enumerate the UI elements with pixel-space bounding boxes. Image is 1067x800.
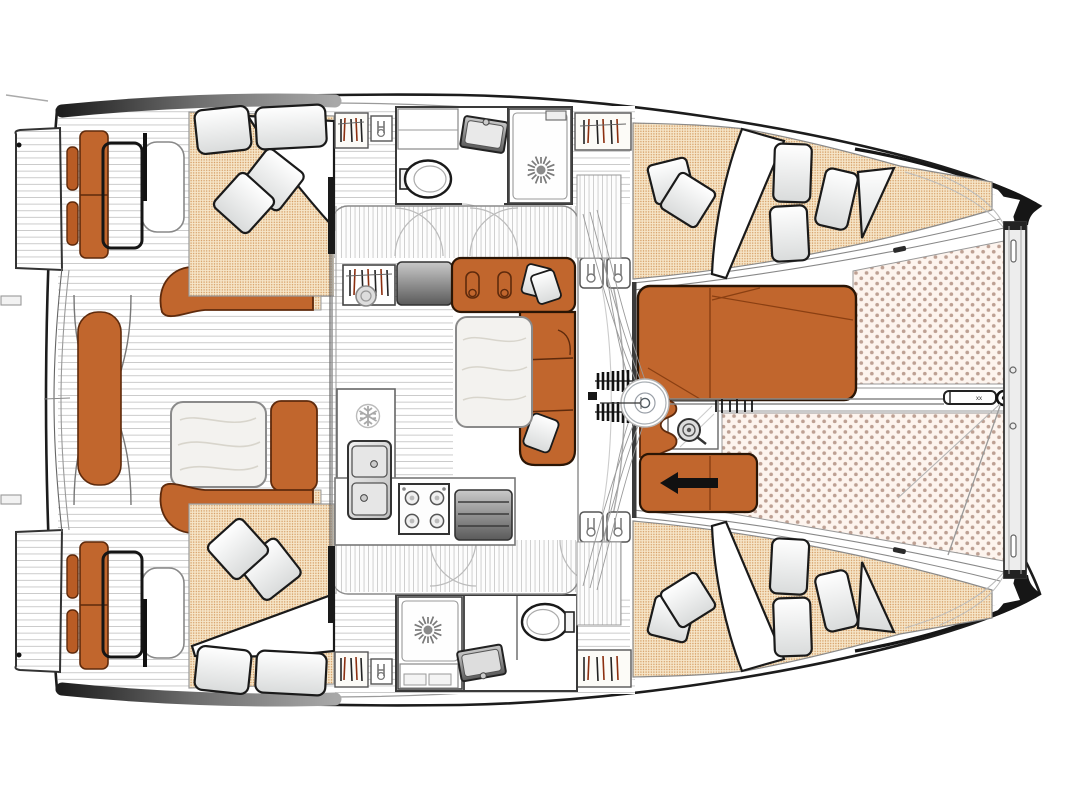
svg-text:xx: xx [976,396,982,402]
